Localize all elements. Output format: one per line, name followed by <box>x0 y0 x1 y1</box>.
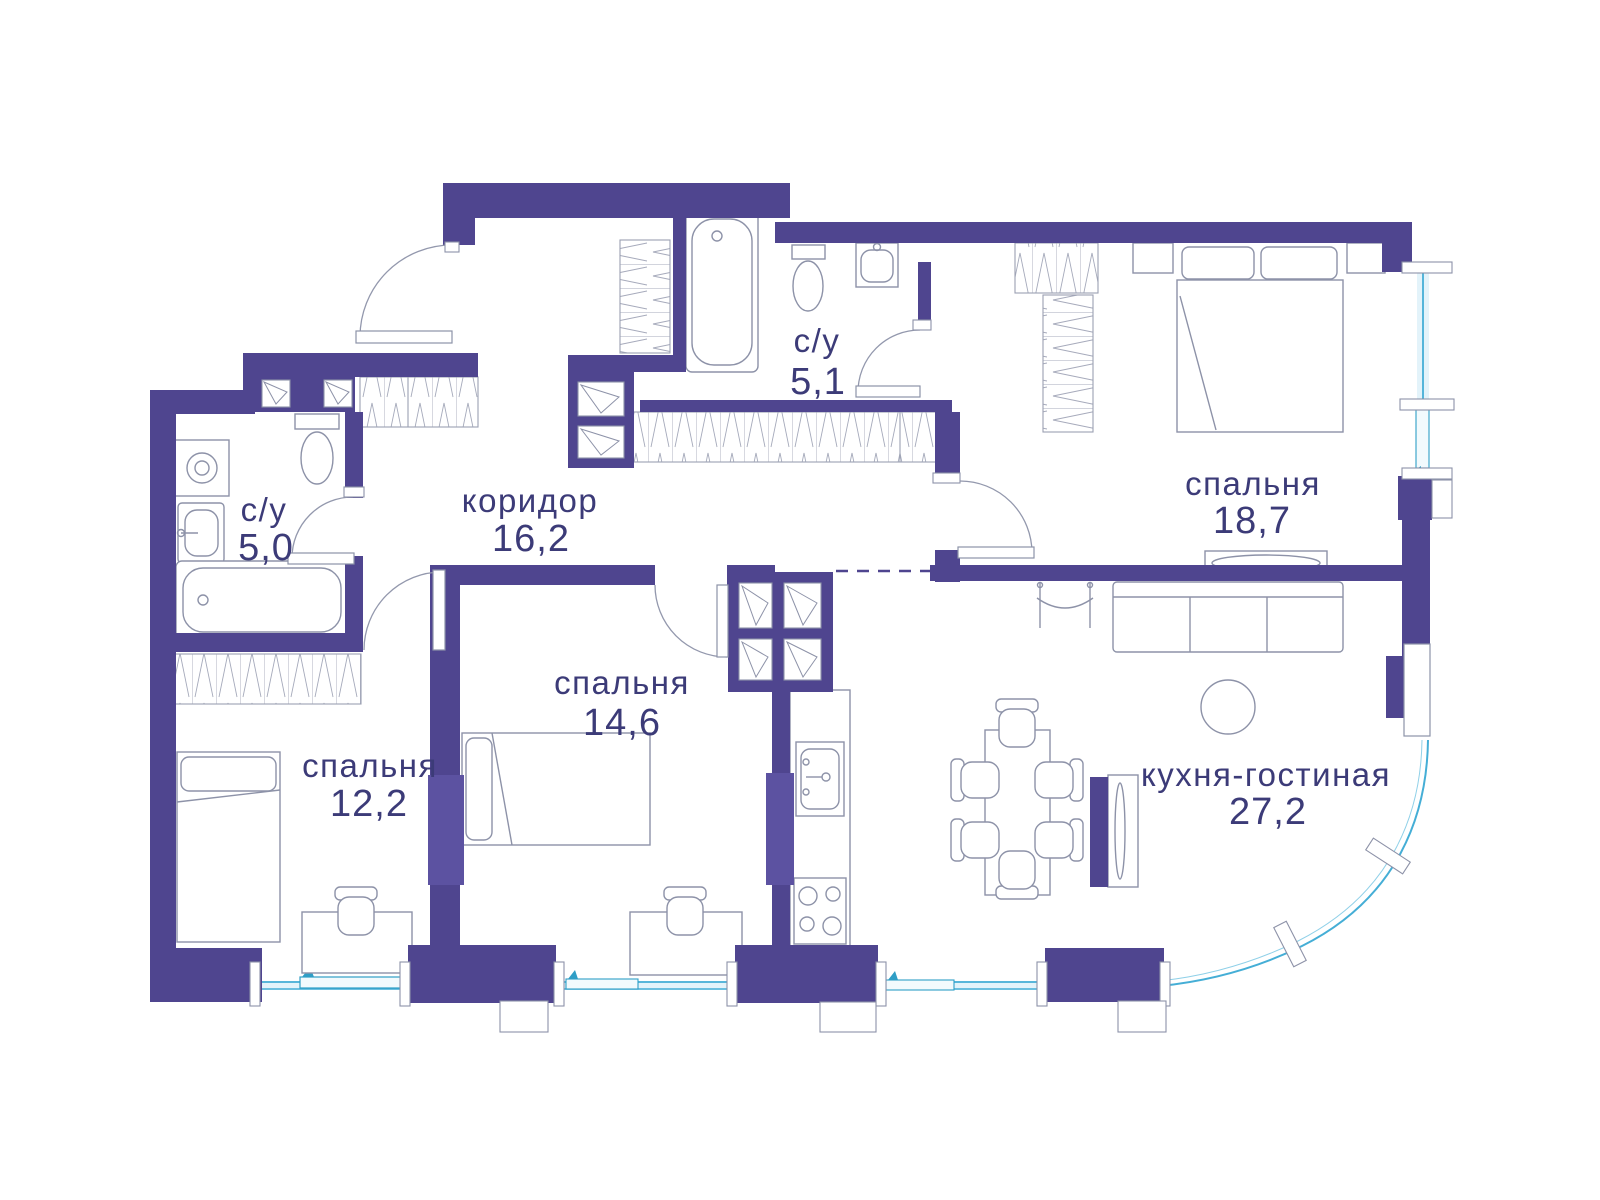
room-label-kitchen-living: кухня-гостиная 27,2 <box>1141 756 1391 833</box>
door-bathroom-left <box>288 487 364 564</box>
room-name: спальня <box>1185 465 1321 502</box>
room-area: 5,1 <box>790 361 846 403</box>
nightstand-symbol <box>1133 243 1173 273</box>
wardrobe-symbol <box>628 412 948 462</box>
room-area: 12,2 <box>330 783 408 825</box>
window-mullion <box>1274 921 1306 967</box>
room-label-bedroom-large: спальня 18,7 <box>1185 465 1321 542</box>
window-mullion <box>1366 838 1411 874</box>
bed-symbol <box>462 733 650 845</box>
chair-symbol <box>1035 759 1083 801</box>
room-name: кухня-гостиная <box>1141 756 1391 793</box>
room-label-bedroom-small: спальня 12,2 <box>302 747 438 825</box>
washing-machine-symbol <box>175 440 229 496</box>
tv-symbol <box>1108 775 1138 887</box>
toilet-symbol <box>792 245 825 311</box>
chair-symbol <box>996 851 1038 899</box>
chair-symbol <box>664 887 706 935</box>
tv-cabinet-symbol <box>1090 777 1108 887</box>
door-bathroom-top <box>856 320 931 397</box>
floor-plan: с/у 5,1 спальня 18,7 с/у 5,0 коридор 16,… <box>0 0 1600 1200</box>
room-area: 5,0 <box>238 527 294 569</box>
bed-symbol <box>1177 247 1343 432</box>
wardrobe-symbol <box>175 654 361 704</box>
entry-door <box>356 242 459 343</box>
sofa-symbol <box>1113 582 1343 652</box>
balcony-door <box>1404 644 1430 736</box>
room-name: с/у <box>241 491 288 528</box>
room-label-corridor: коридор 16,2 <box>462 482 598 560</box>
wardrobe-symbol <box>620 240 670 353</box>
room-name: спальня <box>554 664 690 701</box>
room-label-bathroom-left: с/у 5,0 <box>238 491 294 569</box>
floor-plan-page: с/у 5,1 спальня 18,7 с/у 5,0 коридор 16,… <box>0 0 1600 1200</box>
room-label-bathroom-top: с/у 5,1 <box>790 322 846 403</box>
chair-symbol <box>996 699 1038 747</box>
chair-symbol <box>951 759 999 801</box>
pouf-symbol <box>1201 680 1255 734</box>
sink-symbol <box>178 503 225 563</box>
bathtub-symbol <box>176 561 348 639</box>
chair-symbol <box>335 887 377 935</box>
bed-symbol <box>177 752 280 942</box>
room-label-bedroom-middle: спальня 14,6 <box>554 664 690 744</box>
room-name: с/у <box>794 322 841 359</box>
door-bedroom-middle <box>655 585 728 657</box>
toilet-symbol <box>295 414 339 484</box>
kitchen-counter-symbol <box>790 690 850 955</box>
door-bedroom-large <box>933 473 1034 558</box>
room-area: 16,2 <box>492 518 570 560</box>
chair-symbol <box>951 819 999 861</box>
wardrobe-symbol <box>1043 295 1093 432</box>
room-area: 14,6 <box>583 702 661 744</box>
bathtub-symbol <box>686 212 758 372</box>
nightstand-symbol <box>1347 243 1385 273</box>
room-name: коридор <box>462 482 598 519</box>
ac-unit-symbol <box>1432 480 1452 518</box>
wardrobe-symbol <box>360 377 478 427</box>
room-area: 27,2 <box>1229 791 1307 833</box>
door-bedroom-small <box>364 570 445 650</box>
sink-symbol <box>856 243 898 287</box>
chair-symbol <box>1035 819 1083 861</box>
room-name: спальня <box>302 747 438 784</box>
wardrobe-symbol <box>1015 243 1098 293</box>
console-shelf-symbol <box>1037 582 1093 628</box>
room-area: 18,7 <box>1213 500 1291 542</box>
